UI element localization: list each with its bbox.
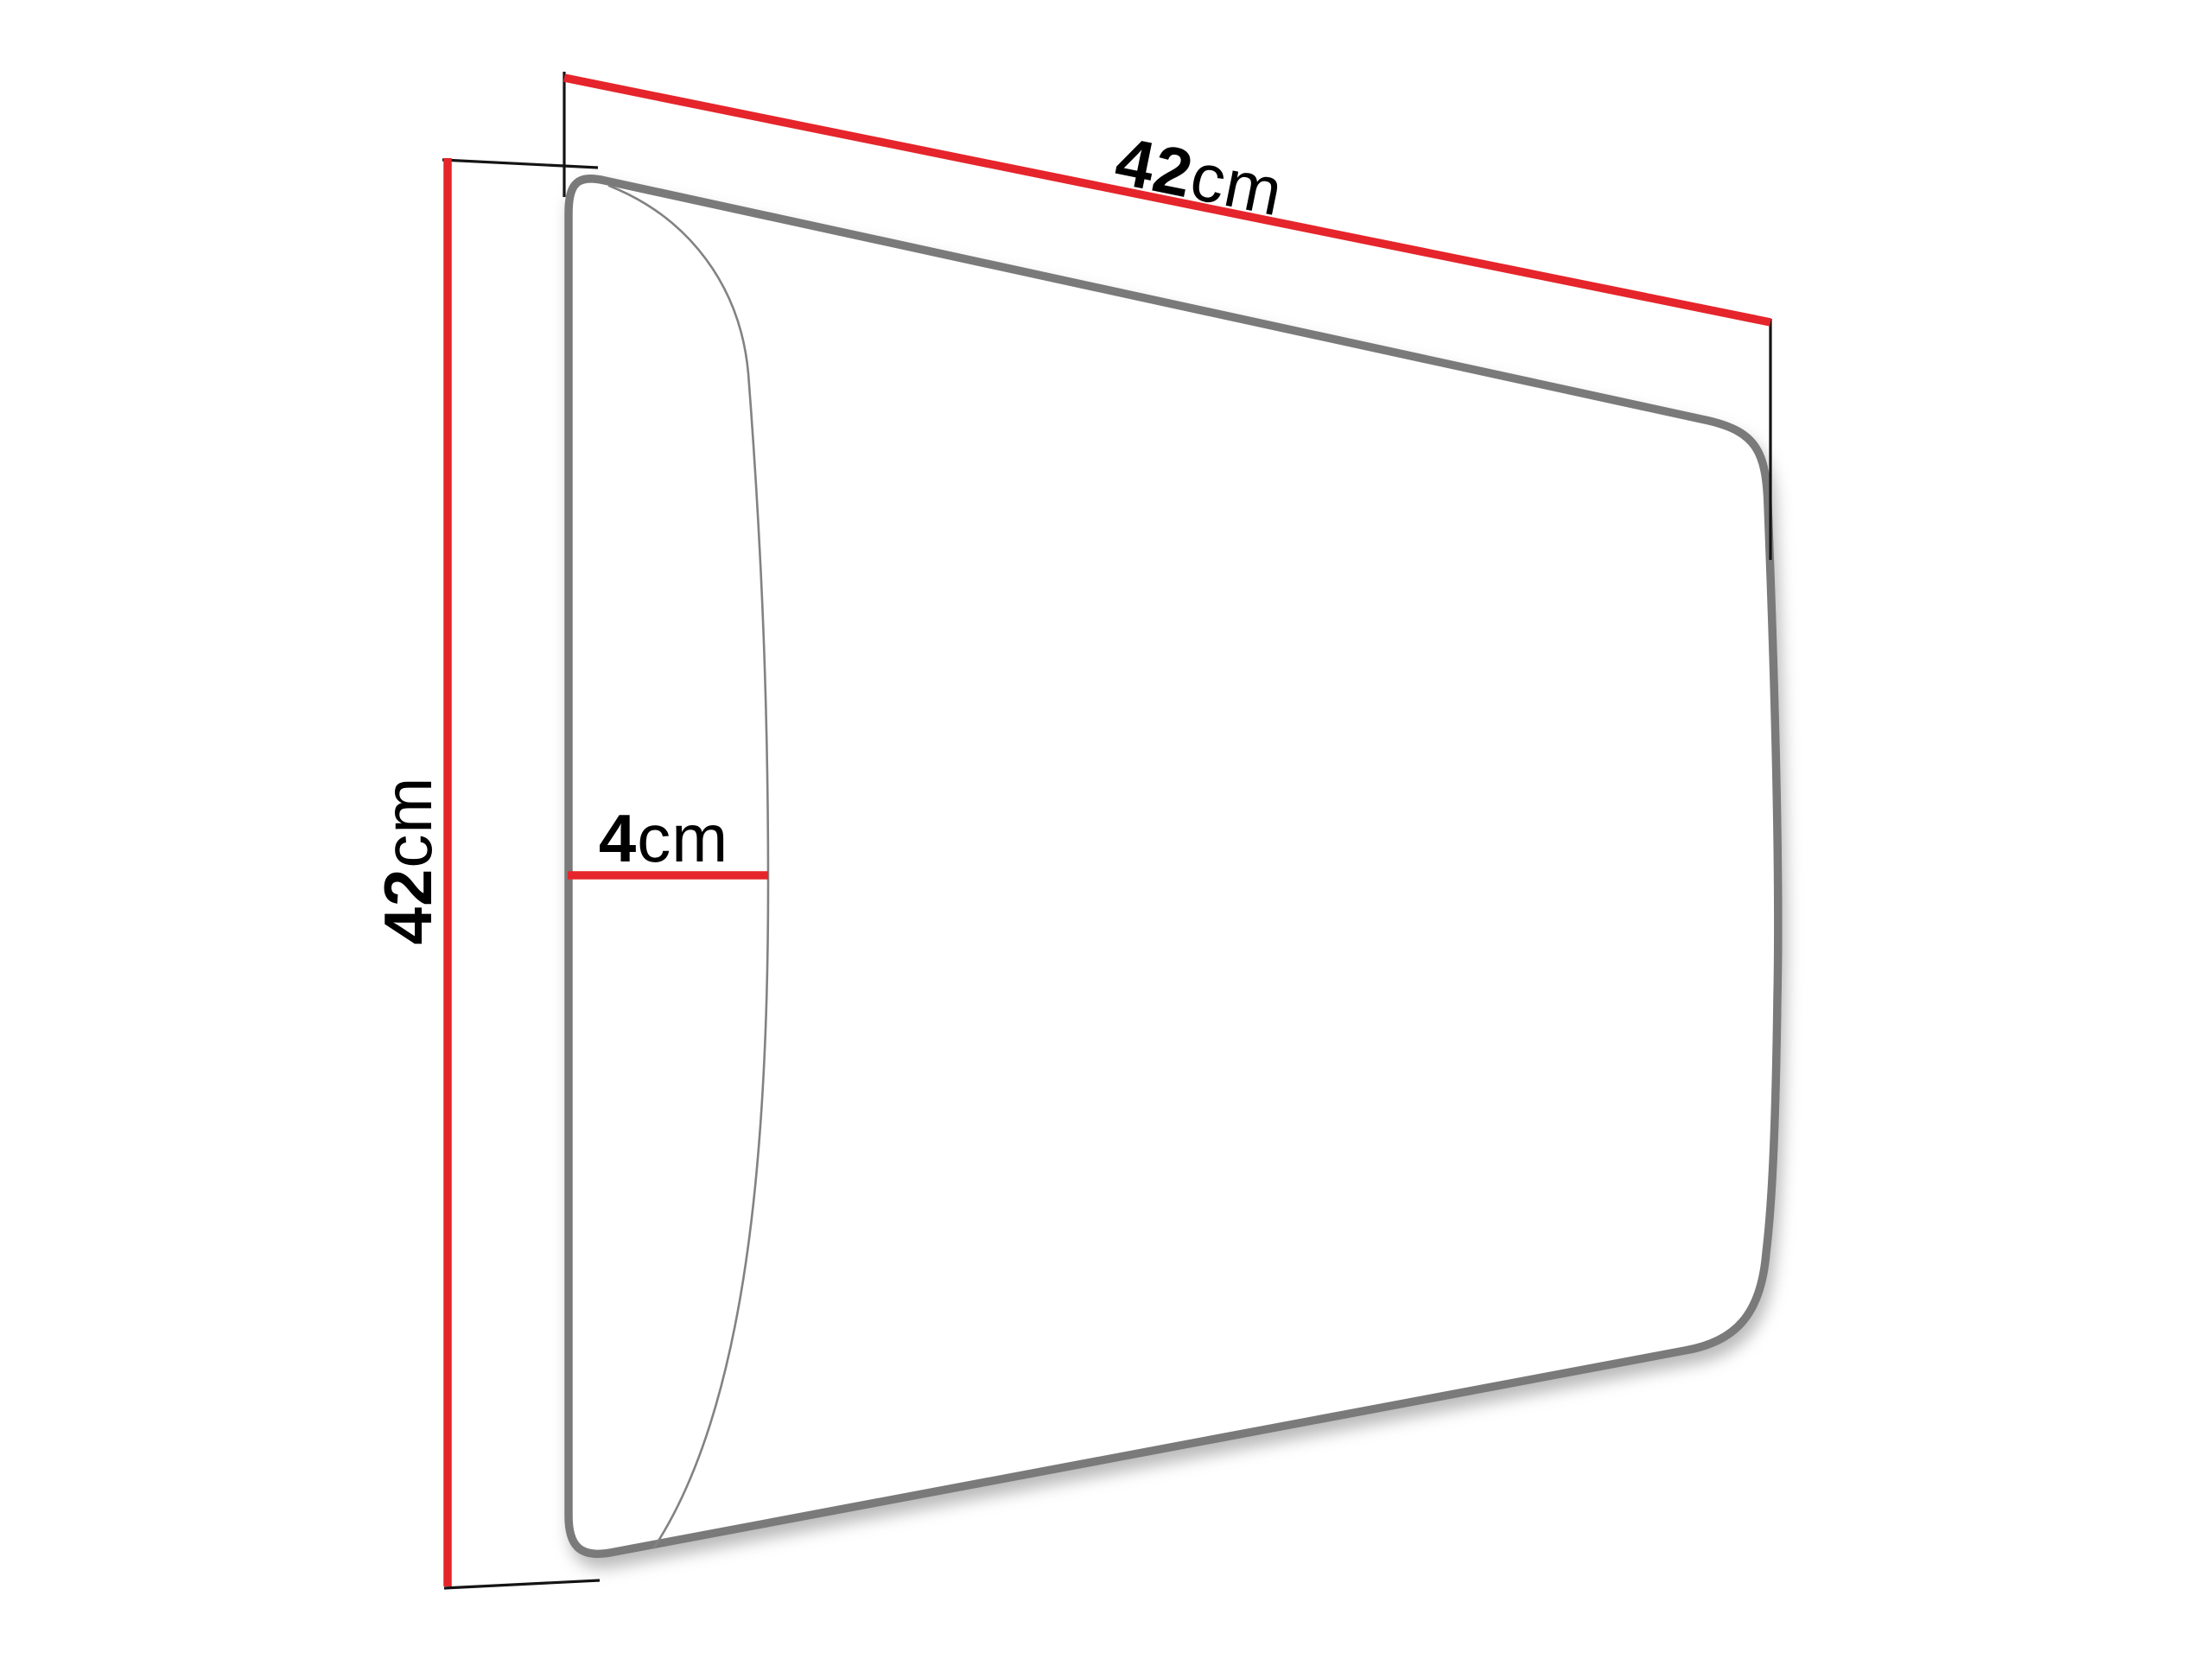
depth-dimension-label: 4cm [599,804,728,872]
height-value: 42 [370,868,446,945]
width-value: 42 [1109,122,1200,212]
height-extension-line-bottom [444,1580,600,1588]
height-extension-line-top [442,160,598,168]
dimension-diagram: 42cm 42cm 4cm [0,0,2212,1659]
height-dimension-label: 42cm [374,777,442,945]
height-unit: cm [370,777,446,868]
depth-unit: cm [637,800,728,876]
diagram-canvas [0,0,2212,1659]
depth-value: 4 [599,800,637,876]
